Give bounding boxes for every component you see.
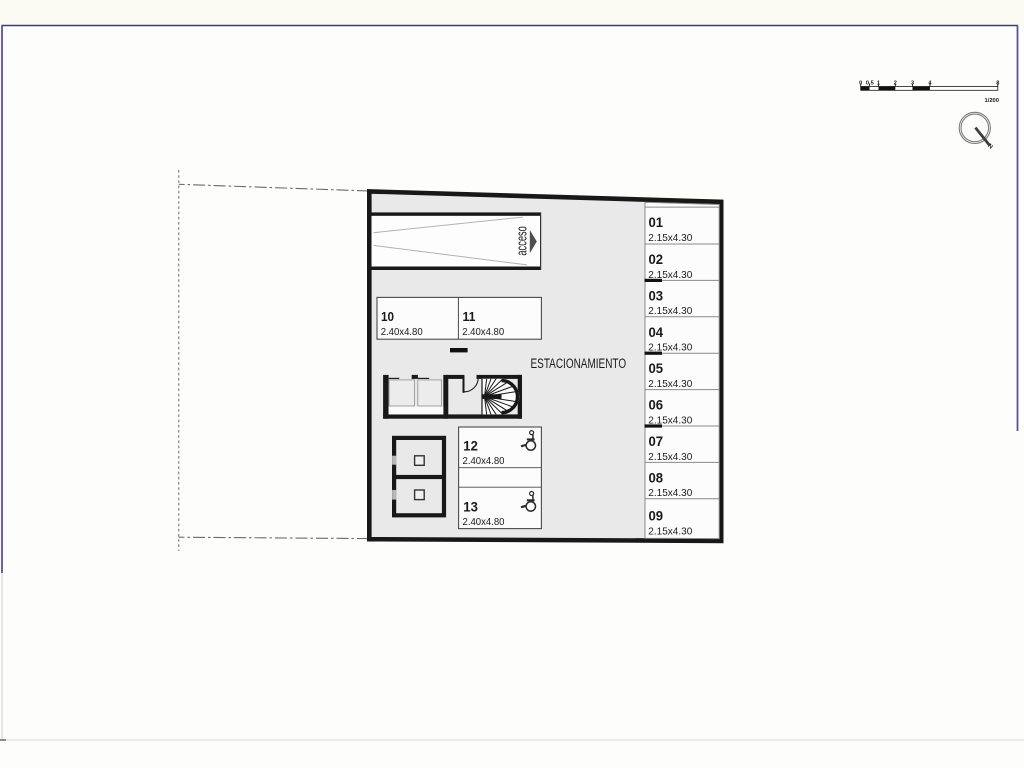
svg-text:2.15x4.30: 2.15x4.30 [648,414,692,426]
svg-text:12: 12 [463,439,478,454]
svg-text:1: 1 [877,81,880,87]
svg-text:3: 3 [911,81,914,87]
svg-text:2.15x4.30: 2.15x4.30 [648,305,692,317]
svg-text:05: 05 [649,361,664,376]
svg-text:06: 06 [649,398,664,413]
svg-text:0: 0 [859,81,862,87]
svg-text:2.40x4.80: 2.40x4.80 [381,327,423,338]
svg-text:8: 8 [996,81,999,87]
svg-text:02: 02 [649,252,664,267]
svg-text:2.40x4.80: 2.40x4.80 [463,456,505,467]
svg-text:01: 01 [649,215,664,230]
svg-text:1/200: 1/200 [984,98,999,104]
svg-text:acceso: acceso [515,226,531,255]
svg-text:2.40x4.80: 2.40x4.80 [463,517,505,528]
svg-text:2.15x4.30: 2.15x4.30 [648,232,692,244]
svg-text:03: 03 [649,288,664,303]
svg-text:2.15x4.30: 2.15x4.30 [648,269,692,281]
svg-text:10: 10 [381,310,394,324]
svg-text:ESTACIONAMIENTO: ESTACIONAMIENTO [531,356,627,371]
svg-text:2: 2 [894,81,897,87]
svg-text:2.15x4.30: 2.15x4.30 [648,342,692,354]
svg-text:2.15x4.30: 2.15x4.30 [648,378,692,390]
svg-text:2.15x4.30: 2.15x4.30 [648,525,692,537]
svg-text:08: 08 [649,470,664,485]
svg-text:2.40x4.80: 2.40x4.80 [462,327,504,338]
svg-text:0.5: 0.5 [866,81,874,87]
svg-text:2.15x4.30: 2.15x4.30 [648,487,692,499]
svg-text:2.15x4.30: 2.15x4.30 [648,451,692,463]
svg-text:04: 04 [649,325,664,340]
svg-text:13: 13 [463,499,478,514]
svg-text:07: 07 [649,434,664,449]
svg-text:11: 11 [463,310,476,324]
svg-text:09: 09 [649,508,664,523]
